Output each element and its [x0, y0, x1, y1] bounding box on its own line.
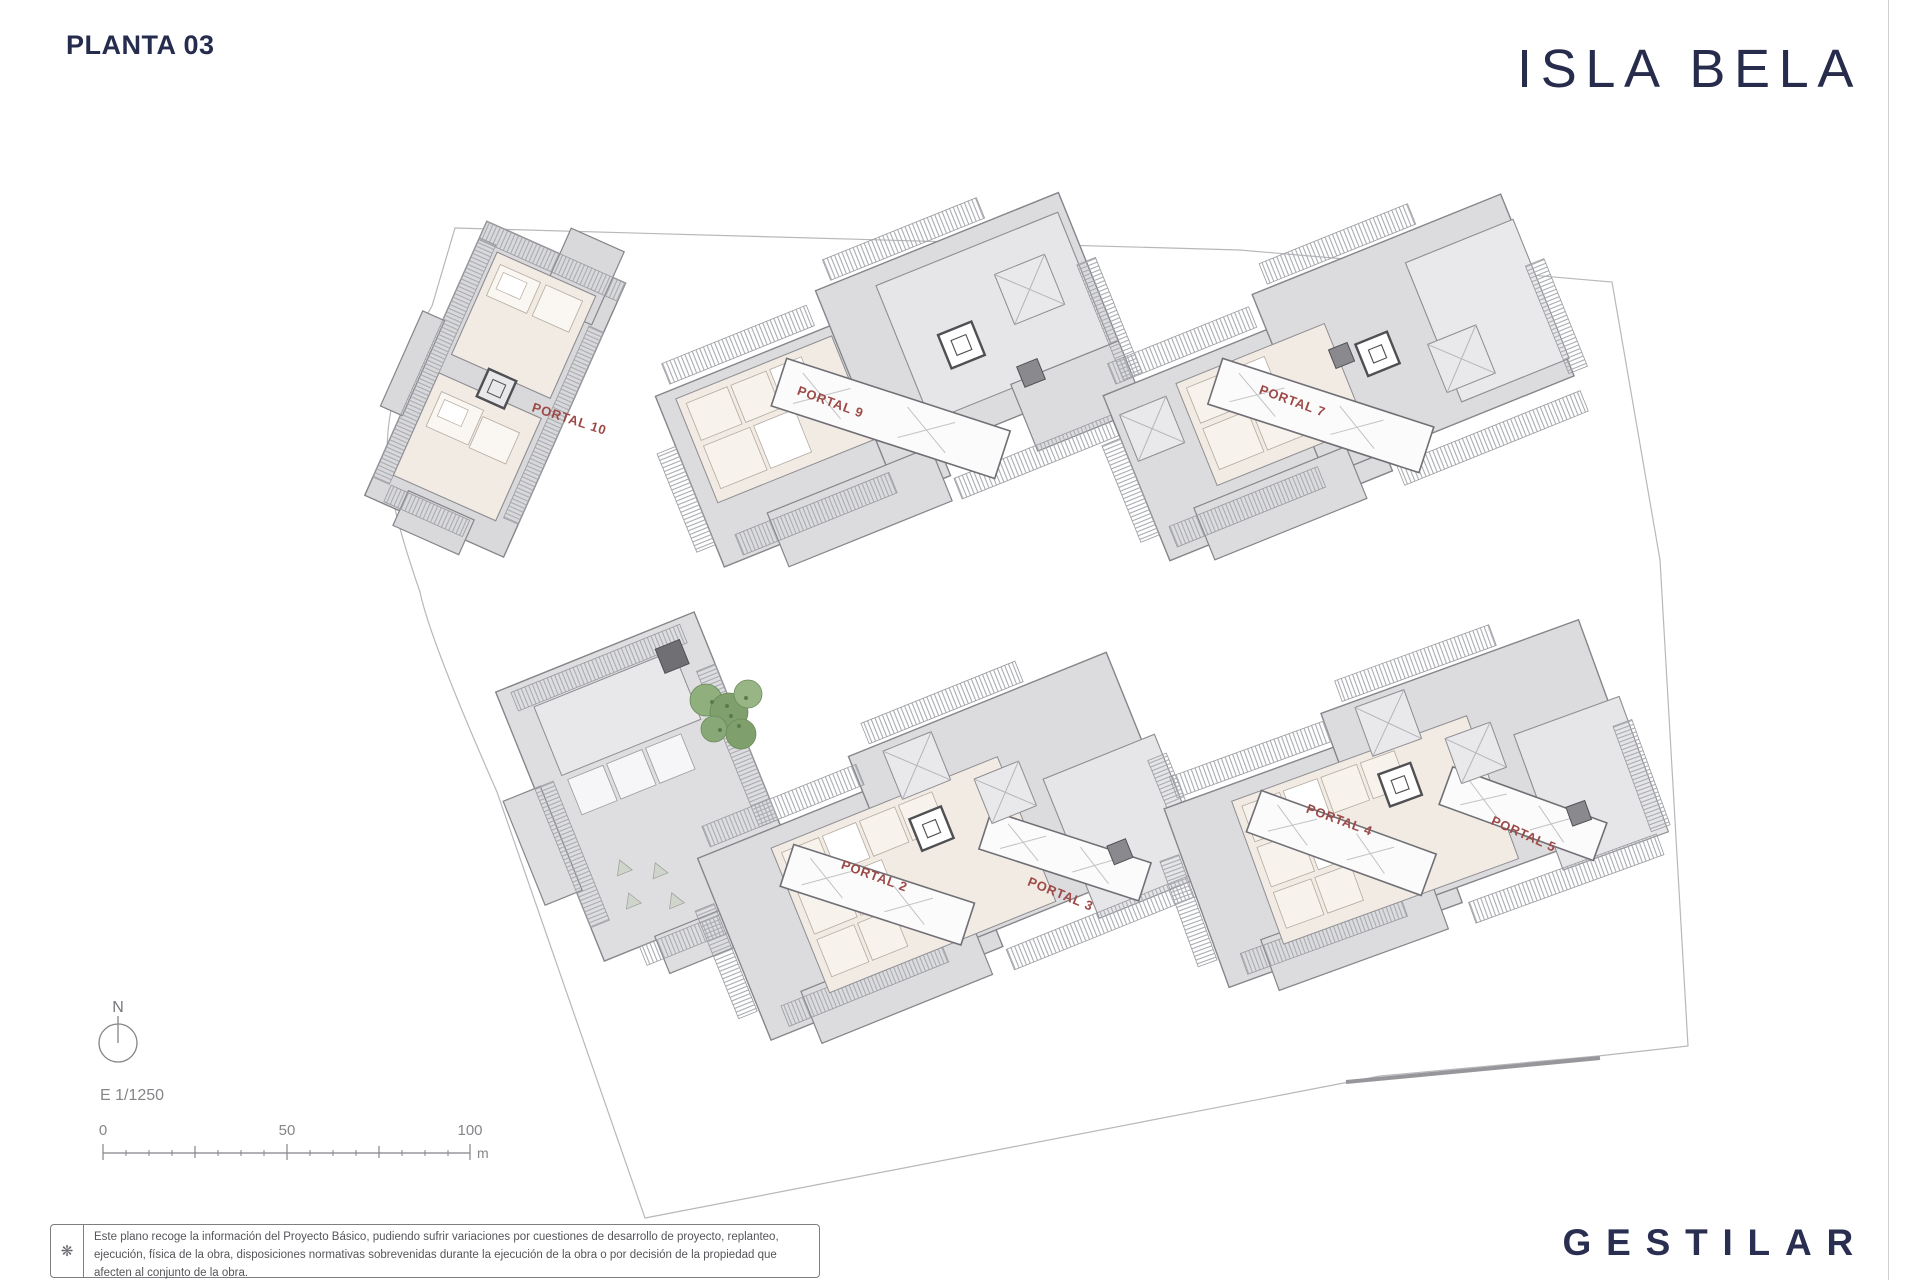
scale-text: E 1/1250	[100, 1087, 164, 1104]
road-edge	[1346, 1058, 1600, 1082]
building-portal-10	[338, 187, 637, 572]
site-plan-drawing: PORTAL 10 PORTAL 9 PORTAL 7 PORTAL 2 POR…	[0, 0, 1920, 1280]
building-portal-7	[1061, 164, 1603, 585]
flower-asterisk-icon: ❋	[51, 1225, 84, 1277]
scale-tick-0: 0	[99, 1122, 107, 1139]
scale-tick-50: 50	[279, 1122, 296, 1139]
disclaimer-text: Este plano recoge la información del Pro…	[84, 1225, 819, 1277]
building-portals-4-5	[1122, 590, 1679, 1018]
scale-unit-label: m	[477, 1145, 489, 1161]
scale-tick-100: 100	[457, 1122, 482, 1139]
developer-logo: GESTILAR	[1168, 1222, 1868, 1264]
scale-bar	[103, 1144, 470, 1160]
sheet-right-border	[1888, 0, 1889, 1280]
disclaimer-box: ❋ Este plano recoge la información del P…	[50, 1224, 820, 1278]
north-label: N	[112, 999, 124, 1016]
brand-logo: ISLA BELA	[1302, 38, 1862, 100]
building-portal-9	[613, 165, 1161, 599]
north-indicator	[99, 1016, 137, 1062]
page-title: PLANTA 03	[66, 30, 215, 61]
